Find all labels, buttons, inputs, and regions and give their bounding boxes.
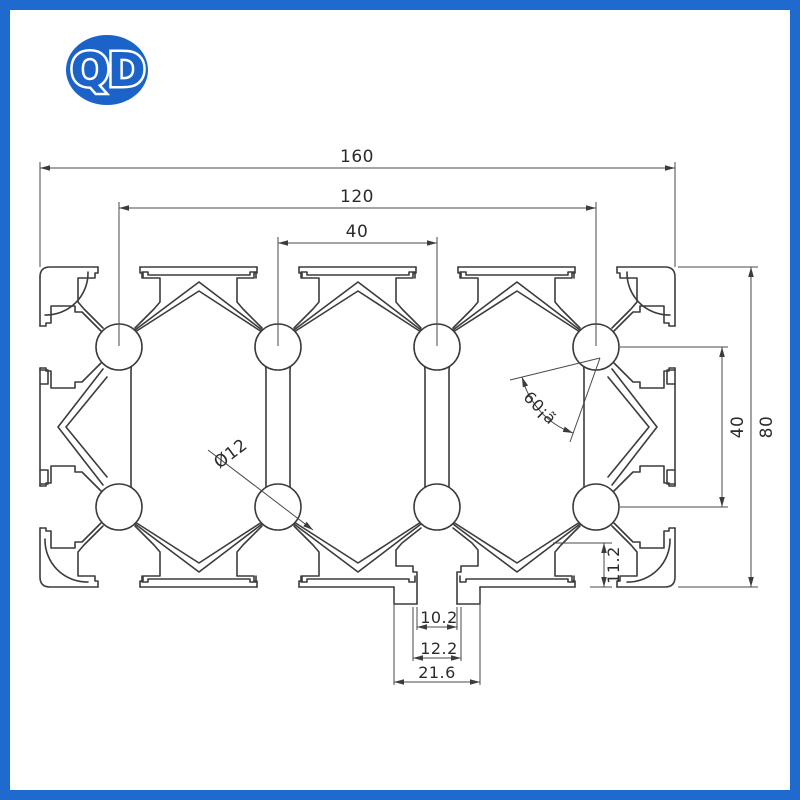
dim-label-21-6: 21.6	[418, 663, 456, 682]
dim-slot-opening: 10.2	[417, 607, 458, 630]
dim-label-10-2: 10.2	[420, 608, 458, 627]
closed-channels	[135, 272, 580, 582]
dim-label-40-top: 40	[346, 222, 369, 242]
drawing-sheet: QD	[0, 0, 800, 800]
profile-drawing-canvas: QD	[10, 10, 800, 800]
dim-label-120: 120	[340, 187, 374, 207]
screw-bosses	[96, 324, 619, 530]
side-channels	[40, 369, 675, 485]
dim-angle-60: 60¡ã	[510, 358, 600, 442]
dim-height-40: 40	[620, 347, 748, 507]
dim-label-angle: 60¡ã	[520, 388, 561, 429]
dim-label-80: 80	[757, 416, 777, 439]
corner-gussets	[45, 272, 670, 582]
dim-label-160: 160	[340, 147, 374, 167]
dim-label-40-right: 40	[728, 416, 748, 439]
dim-slot-depth: 11.2	[553, 543, 623, 587]
central-cavities	[131, 291, 584, 563]
logo: QD	[66, 35, 148, 105]
bottom-center-slot-foot	[394, 528, 480, 604]
dim-label-12-2: 12.2	[420, 639, 458, 658]
logo-text: QD	[70, 43, 143, 97]
profile-outline	[40, 267, 675, 587]
dim-label-11-2: 11.2	[604, 546, 623, 584]
bottom-t-slots	[78, 526, 637, 587]
top-t-slots	[78, 267, 637, 328]
dim-width-160: 160	[40, 147, 675, 267]
